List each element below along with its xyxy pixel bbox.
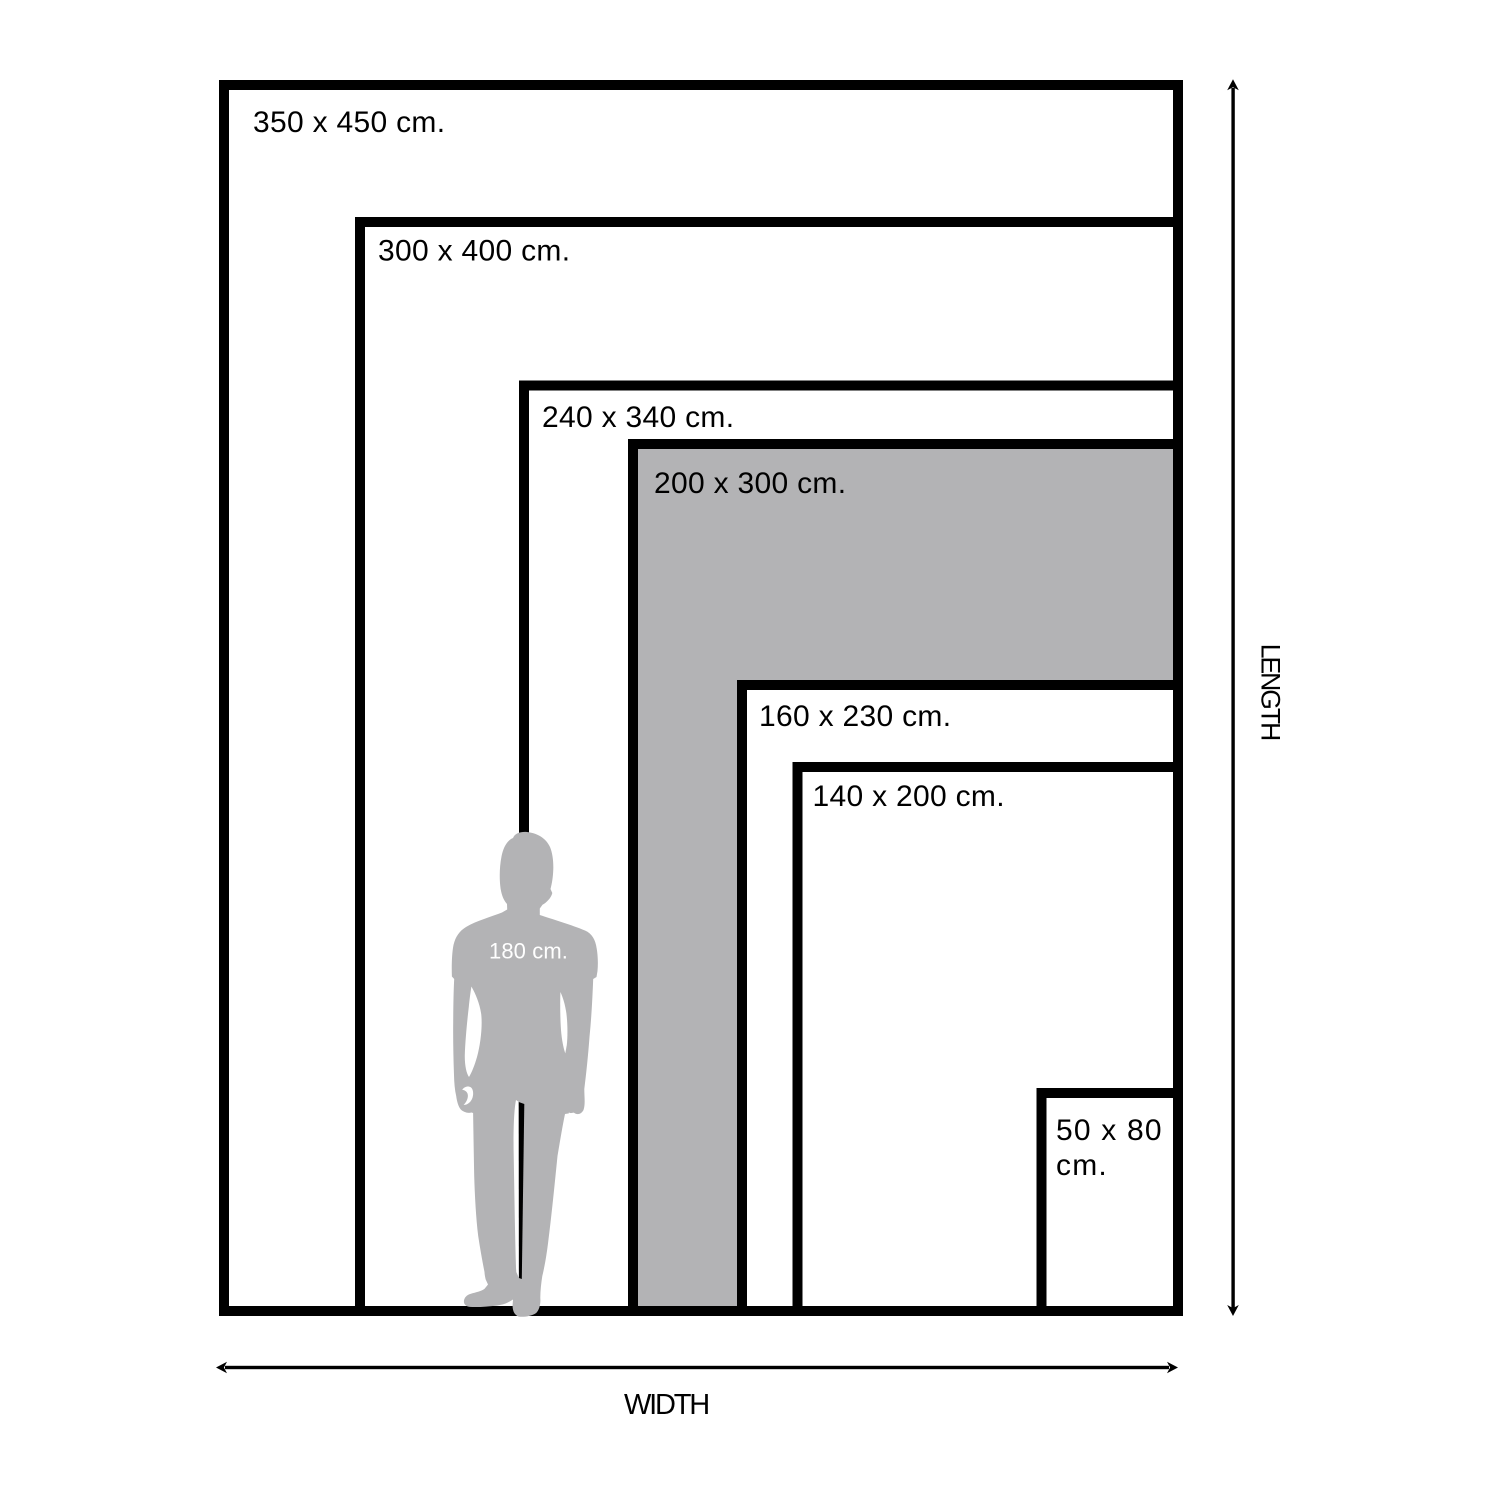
svg-text:350 x 450 cm.: 350 x 450 cm. xyxy=(253,106,445,139)
svg-text:WIDTH: WIDTH xyxy=(624,1389,708,1421)
svg-text:50 x 80: 50 x 80 xyxy=(1056,1114,1163,1147)
svg-text:cm.: cm. xyxy=(1056,1149,1108,1182)
svg-text:240 x 340 cm.: 240 x 340 cm. xyxy=(542,401,734,434)
svg-text:140 x 200 cm.: 140 x 200 cm. xyxy=(813,780,1005,813)
svg-text:LENGTH: LENGTH xyxy=(1256,644,1286,740)
svg-text:200 x 300 cm.: 200 x 300 cm. xyxy=(654,467,846,500)
svg-text:300 x 400 cm.: 300 x 400 cm. xyxy=(378,235,570,268)
svg-text:180 cm.: 180 cm. xyxy=(489,939,568,964)
svg-text:160 x 230 cm.: 160 x 230 cm. xyxy=(759,700,951,733)
